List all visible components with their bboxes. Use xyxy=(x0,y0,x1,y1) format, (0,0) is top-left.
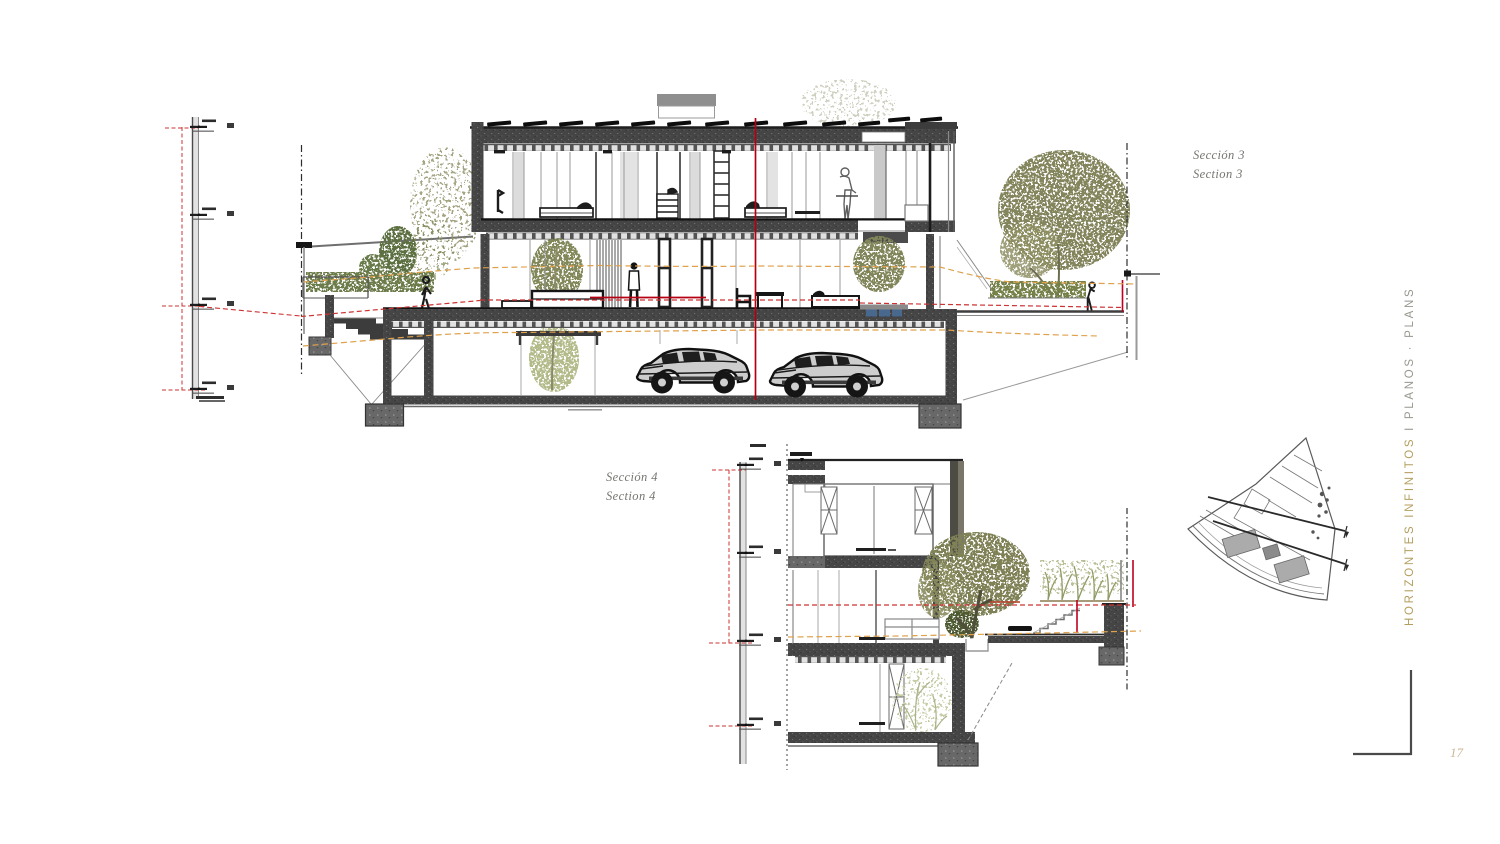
svg-text:Sección 3: Sección 3 xyxy=(1193,148,1245,162)
svg-text:Section 4: Section 4 xyxy=(606,489,656,503)
svg-text:HORIZONTES INFINITOS I PLANOS: HORIZONTES INFINITOS I PLANOS · PLANS xyxy=(1404,287,1416,626)
svg-text:Sección 4: Sección 4 xyxy=(606,470,658,484)
svg-text:Section 3: Section 3 xyxy=(1193,167,1243,181)
svg-text:17: 17 xyxy=(1450,745,1464,760)
